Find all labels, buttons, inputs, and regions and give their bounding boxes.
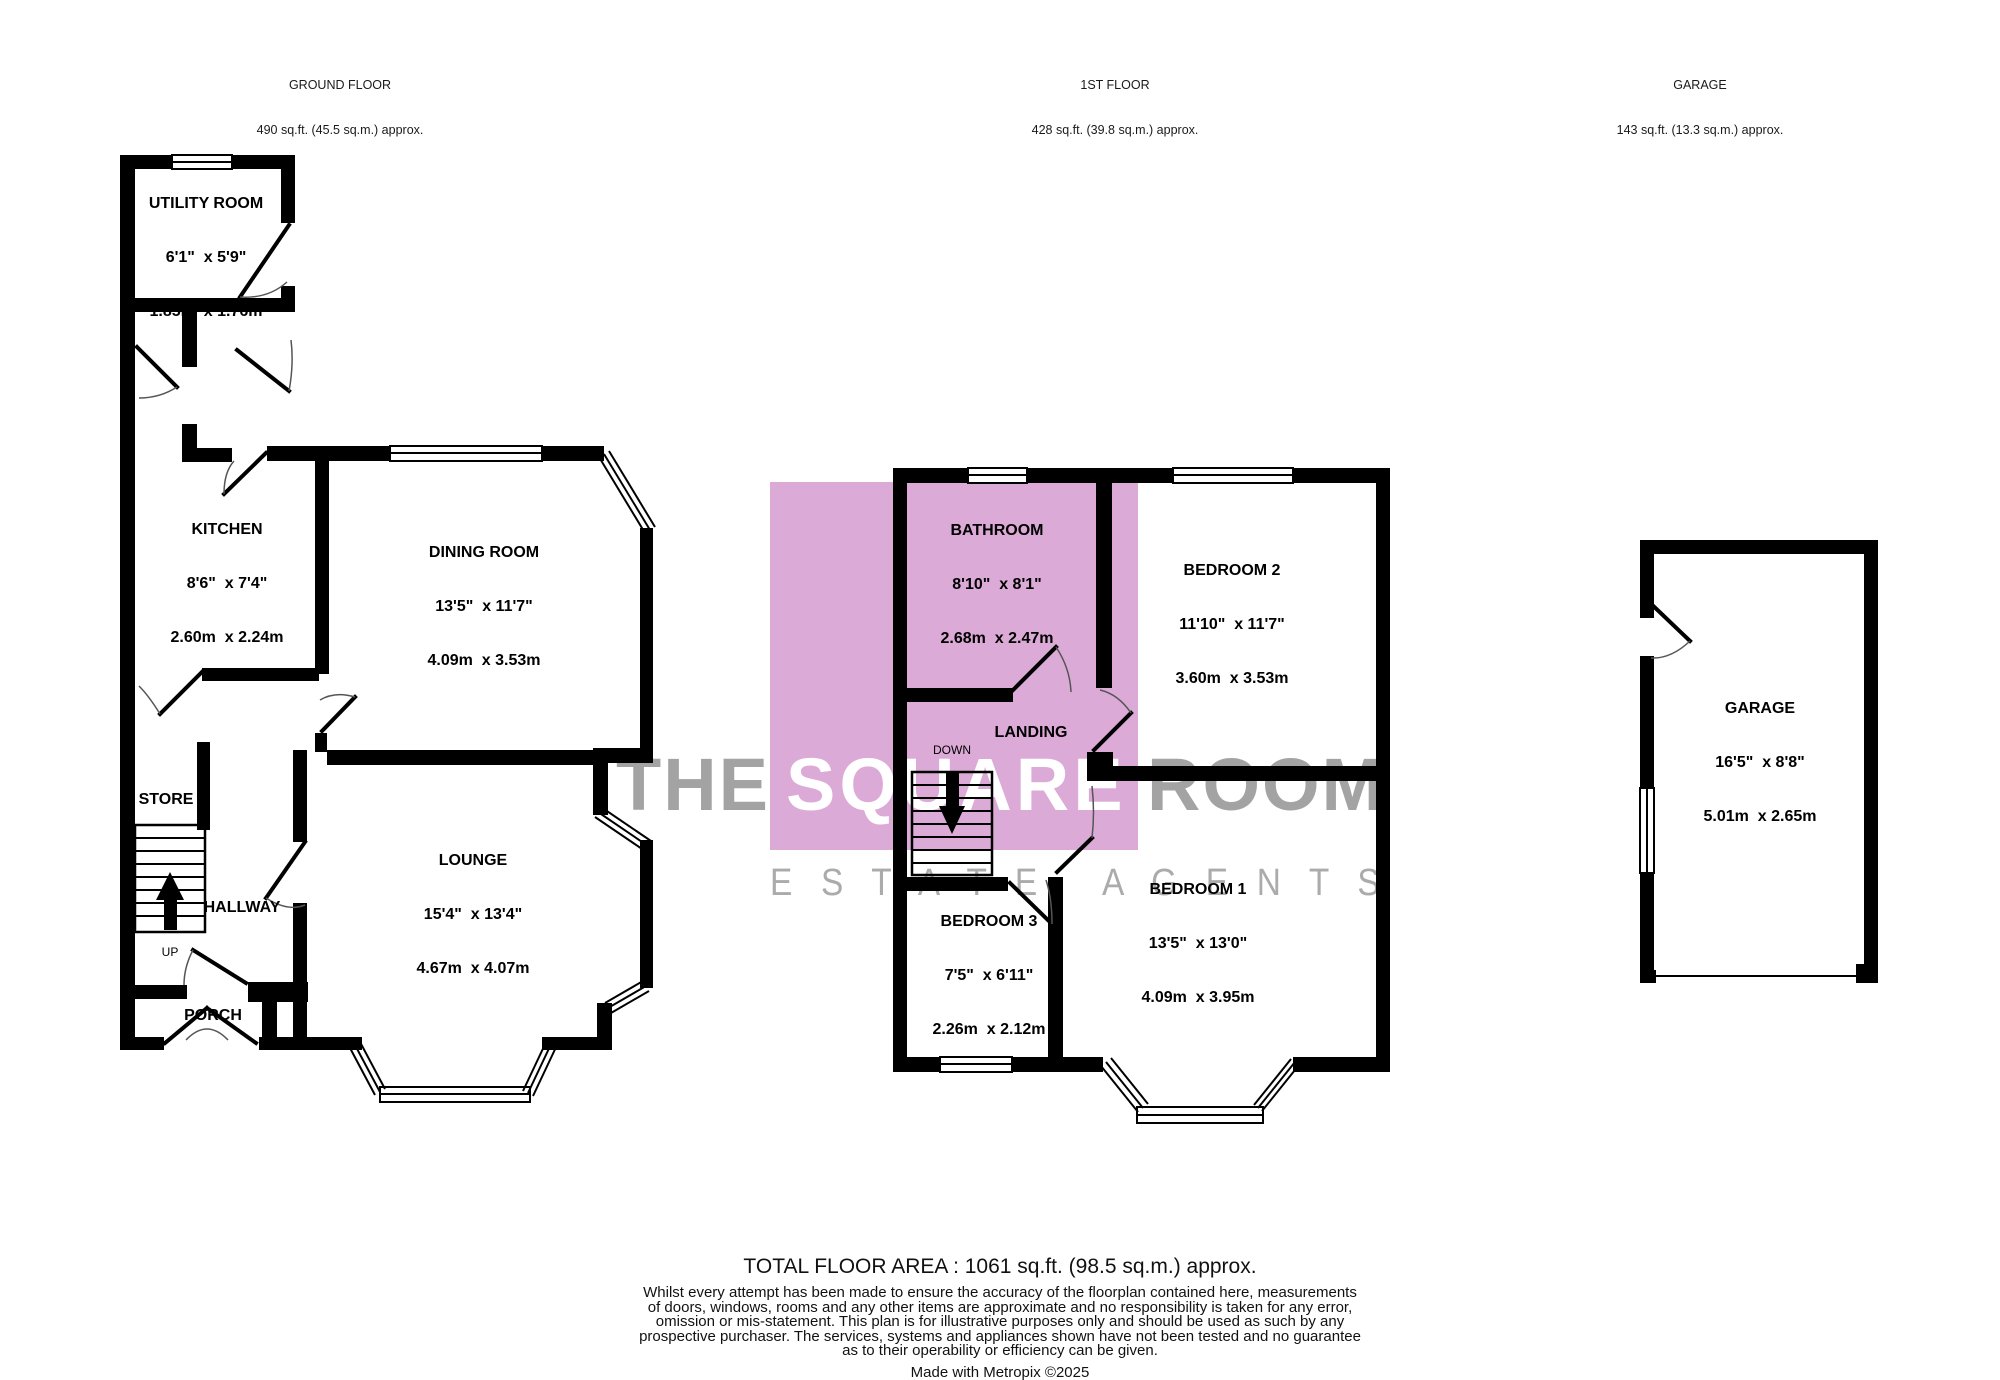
- garage-title: GARAGE: [1617, 78, 1784, 93]
- room-label-bathroom: BATHROOM 8'10" x 8'1" 2.68m x 2.47m: [941, 486, 1054, 684]
- label-store: STORE: [139, 791, 194, 809]
- metropix-credit: Made with Metropix ©2025: [0, 1365, 2000, 1380]
- ground-floor-area: 490 sq.ft. (45.5 sq.m.) approx.: [257, 123, 424, 138]
- room-name: GARAGE: [1704, 700, 1817, 718]
- first-floor-header: 1ST FLOOR 428 sq.ft. (39.8 sq.m.) approx…: [1032, 48, 1199, 168]
- room-dims-imperial: 13'5" x 11'7": [428, 598, 541, 616]
- room-label-dining: DINING ROOM 13'5" x 11'7" 4.09m x 3.53m: [428, 508, 541, 706]
- room-dims-metric: 2.26m x 2.12m: [933, 1021, 1046, 1039]
- room-dims-metric: 4.67m x 4.07m: [417, 960, 530, 978]
- room-dims-metric: 2.60m x 2.24m: [171, 629, 284, 647]
- room-name: BEDROOM 3: [933, 913, 1046, 931]
- total-floor-area: TOTAL FLOOR AREA : 1061 sq.ft. (98.5 sq.…: [0, 1255, 2000, 1279]
- garage-area: 143 sq.ft. (13.3 sq.m.) approx.: [1617, 123, 1784, 138]
- room-dims-imperial: 8'10" x 8'1": [941, 576, 1054, 594]
- label-landing: LANDING: [995, 724, 1068, 742]
- room-name: DINING ROOM: [428, 544, 541, 562]
- ground-floor-header: GROUND FLOOR 490 sq.ft. (45.5 sq.m.) app…: [257, 48, 424, 168]
- room-dims-imperial: 11'10" x 11'7": [1176, 616, 1289, 634]
- first-floor-title: 1ST FLOOR: [1032, 78, 1199, 93]
- room-dims-metric: 4.09m x 3.95m: [1142, 989, 1255, 1007]
- room-label-utility: UTILITY ROOM 6'1" x 5'9" 1.85m x 1.76m: [149, 159, 263, 357]
- room-dims-metric: 4.09m x 3.53m: [428, 652, 541, 670]
- garage-header: GARAGE 143 sq.ft. (13.3 sq.m.) approx.: [1617, 48, 1784, 168]
- text-layer: GROUND FLOOR 490 sq.ft. (45.5 sq.m.) app…: [0, 0, 2000, 1380]
- first-floor-area: 428 sq.ft. (39.8 sq.m.) approx.: [1032, 123, 1199, 138]
- room-label-bedroom2: BEDROOM 2 11'10" x 11'7" 3.60m x 3.53m: [1176, 526, 1289, 724]
- room-name: BEDROOM 2: [1176, 562, 1289, 580]
- room-name: BATHROOM: [941, 522, 1054, 540]
- room-dims-metric: 2.68m x 2.47m: [941, 630, 1054, 648]
- label-hallway: HALLWAY: [204, 899, 281, 917]
- room-name: LOUNGE: [417, 852, 530, 870]
- room-dims-imperial: 13'5" x 13'0": [1142, 935, 1255, 953]
- room-dims-imperial: 8'6" x 7'4": [171, 575, 284, 593]
- room-dims-metric: 3.60m x 3.53m: [1176, 670, 1289, 688]
- room-label-bedroom3: BEDROOM 3 7'5" x 6'11" 2.26m x 2.12m: [933, 877, 1046, 1075]
- room-label-kitchen: KITCHEN 8'6" x 7'4" 2.60m x 2.24m: [171, 485, 284, 683]
- room-name: KITCHEN: [171, 521, 284, 539]
- room-label-lounge: LOUNGE 15'4" x 13'4" 4.67m x 4.07m: [417, 816, 530, 1014]
- room-name: UTILITY ROOM: [149, 195, 263, 213]
- label-down: DOWN: [933, 743, 971, 757]
- footer: TOTAL FLOOR AREA : 1061 sq.ft. (98.5 sq.…: [0, 1255, 2000, 1380]
- room-dims-metric: 1.85m x 1.76m: [149, 303, 263, 321]
- room-label-bedroom1: BEDROOM 1 13'5" x 13'0" 4.09m x 3.95m: [1142, 845, 1255, 1043]
- room-dims-imperial: 7'5" x 6'11": [933, 967, 1046, 985]
- room-label-garage: GARAGE 16'5" x 8'8" 5.01m x 2.65m: [1704, 664, 1817, 862]
- ground-floor-title: GROUND FLOOR: [257, 78, 424, 93]
- disclaimer-line: as to their operability or efficiency ca…: [0, 1344, 2000, 1359]
- label-porch: PORCH: [184, 1007, 242, 1025]
- room-dims-imperial: 6'1" x 5'9": [149, 249, 263, 267]
- room-name: BEDROOM 1: [1142, 881, 1255, 899]
- room-dims-metric: 5.01m x 2.65m: [1704, 808, 1817, 826]
- room-dims-imperial: 16'5" x 8'8": [1704, 754, 1817, 772]
- label-up: UP: [162, 945, 179, 959]
- floorplan-page: THE SQUARE ROOM E S T A T E A G E N T S: [0, 0, 2000, 1380]
- room-dims-imperial: 15'4" x 13'4": [417, 906, 530, 924]
